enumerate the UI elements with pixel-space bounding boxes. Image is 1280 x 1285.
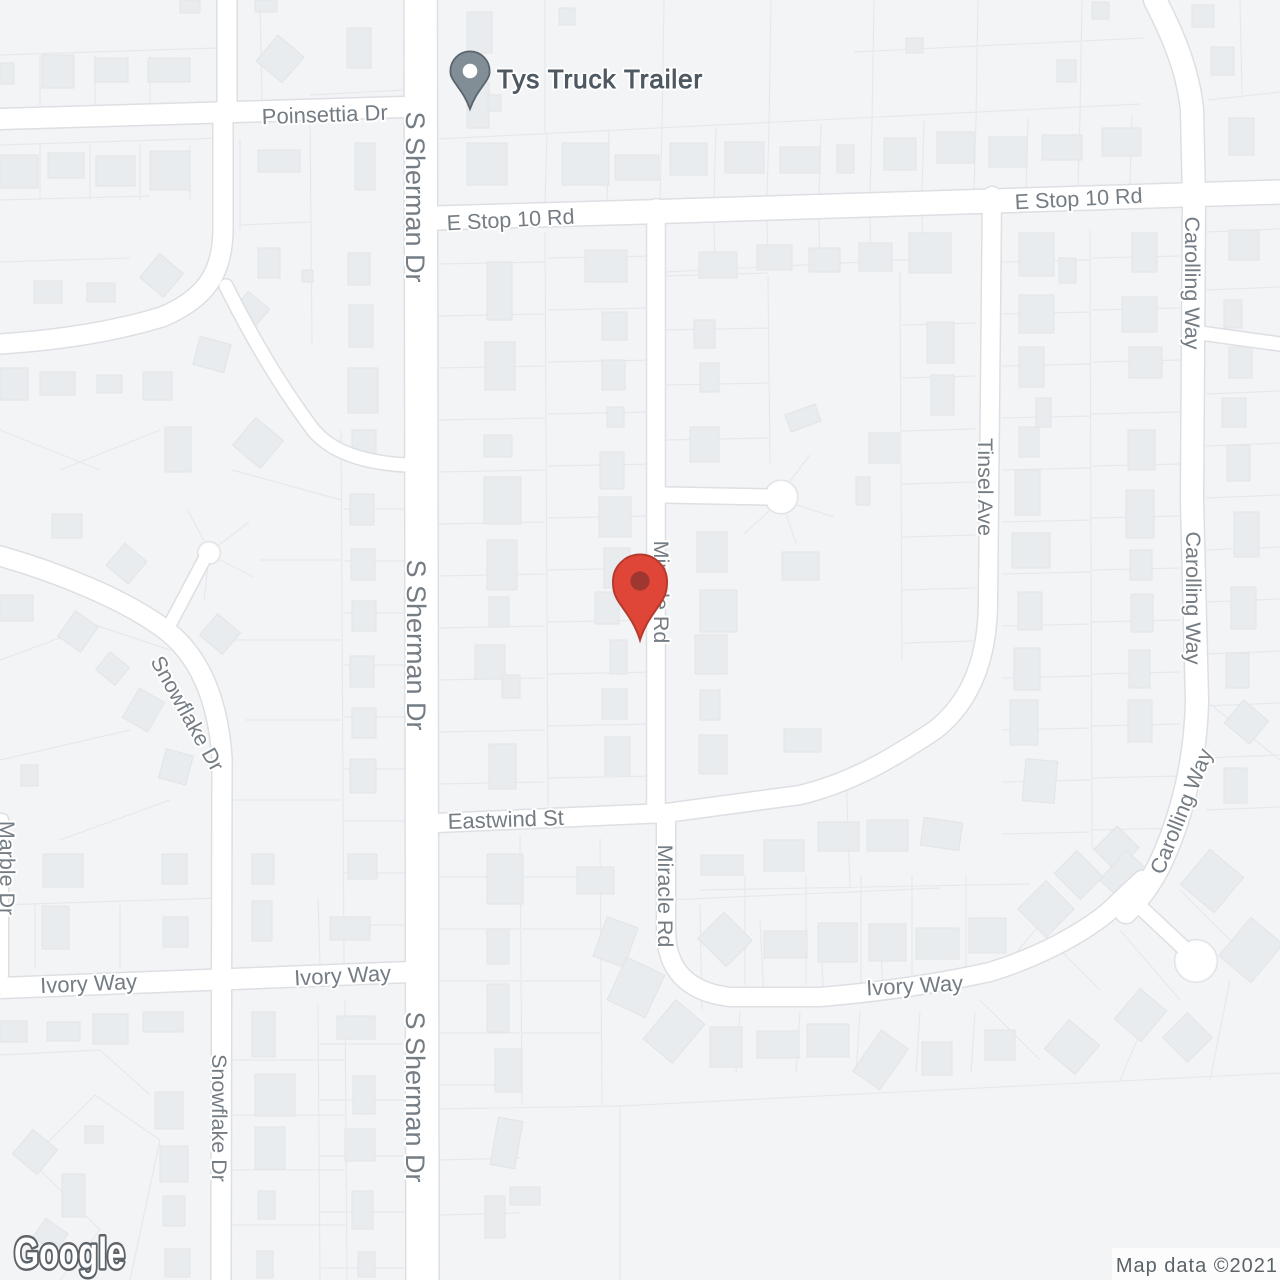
svg-text:S Sherman Dr: S Sherman Dr [401, 559, 431, 730]
svg-text:Carolling Way: Carolling Way [1180, 216, 1204, 349]
svg-text:Ivory Way: Ivory Way [294, 960, 392, 990]
svg-text:Ivory Way: Ivory Way [40, 969, 138, 998]
svg-text:S Sherman Dr: S Sherman Dr [400, 1011, 430, 1182]
svg-text:Map data ©2021: Map data ©2021 [1116, 1255, 1278, 1277]
svg-text:S Sherman Dr: S Sherman Dr [400, 111, 430, 282]
svg-text:Tys Truck Trailer: Tys Truck Trailer [497, 64, 703, 94]
svg-text:Google: Google [14, 1229, 125, 1278]
svg-text:Tinsel Ave: Tinsel Ave [973, 438, 997, 536]
svg-text:Snowflake Dr: Snowflake Dr [207, 1054, 231, 1182]
svg-text:Marble Dr: Marble Dr [0, 821, 19, 915]
svg-text:Miracle Rd: Miracle Rd [653, 845, 677, 948]
svg-text:Eastwind St: Eastwind St [447, 805, 564, 834]
svg-text:Carolling Way: Carolling Way [1181, 531, 1205, 664]
svg-text:Ivory Way: Ivory Way [866, 970, 964, 1000]
svg-text:Poinsettia Dr: Poinsettia Dr [261, 100, 388, 129]
